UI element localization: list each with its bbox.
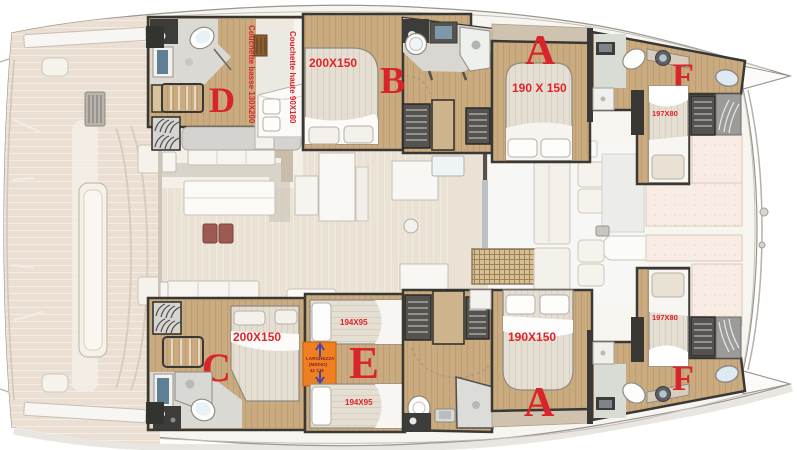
svg-text:200X150: 200X150 bbox=[233, 330, 281, 344]
svg-text:194X95: 194X95 bbox=[345, 398, 373, 407]
svg-text:197X80: 197X80 bbox=[652, 313, 678, 322]
svg-text:A: A bbox=[524, 380, 555, 426]
svg-text:E: E bbox=[349, 338, 379, 388]
svg-text:B: B bbox=[380, 60, 405, 102]
svg-text:Couchette basse 130X200: Couchette basse 130X200 bbox=[247, 25, 256, 124]
svg-text:Couchette haute 90X180: Couchette haute 90X180 bbox=[288, 31, 297, 124]
svg-text:190 X 150: 190 X 150 bbox=[512, 81, 567, 95]
svg-text:LARGHEZZA: LARGHEZZA bbox=[306, 356, 335, 361]
svg-text:190X150: 190X150 bbox=[508, 330, 556, 344]
svg-text:(MEDIO): (MEDIO) bbox=[309, 362, 328, 367]
svg-text:197X80: 197X80 bbox=[652, 109, 678, 118]
svg-text:41 CM: 41 CM bbox=[310, 368, 324, 373]
svg-text:194X95: 194X95 bbox=[340, 318, 368, 327]
svg-text:D: D bbox=[209, 80, 235, 120]
svg-text:200X150: 200X150 bbox=[309, 56, 357, 70]
svg-text:A: A bbox=[525, 28, 556, 74]
